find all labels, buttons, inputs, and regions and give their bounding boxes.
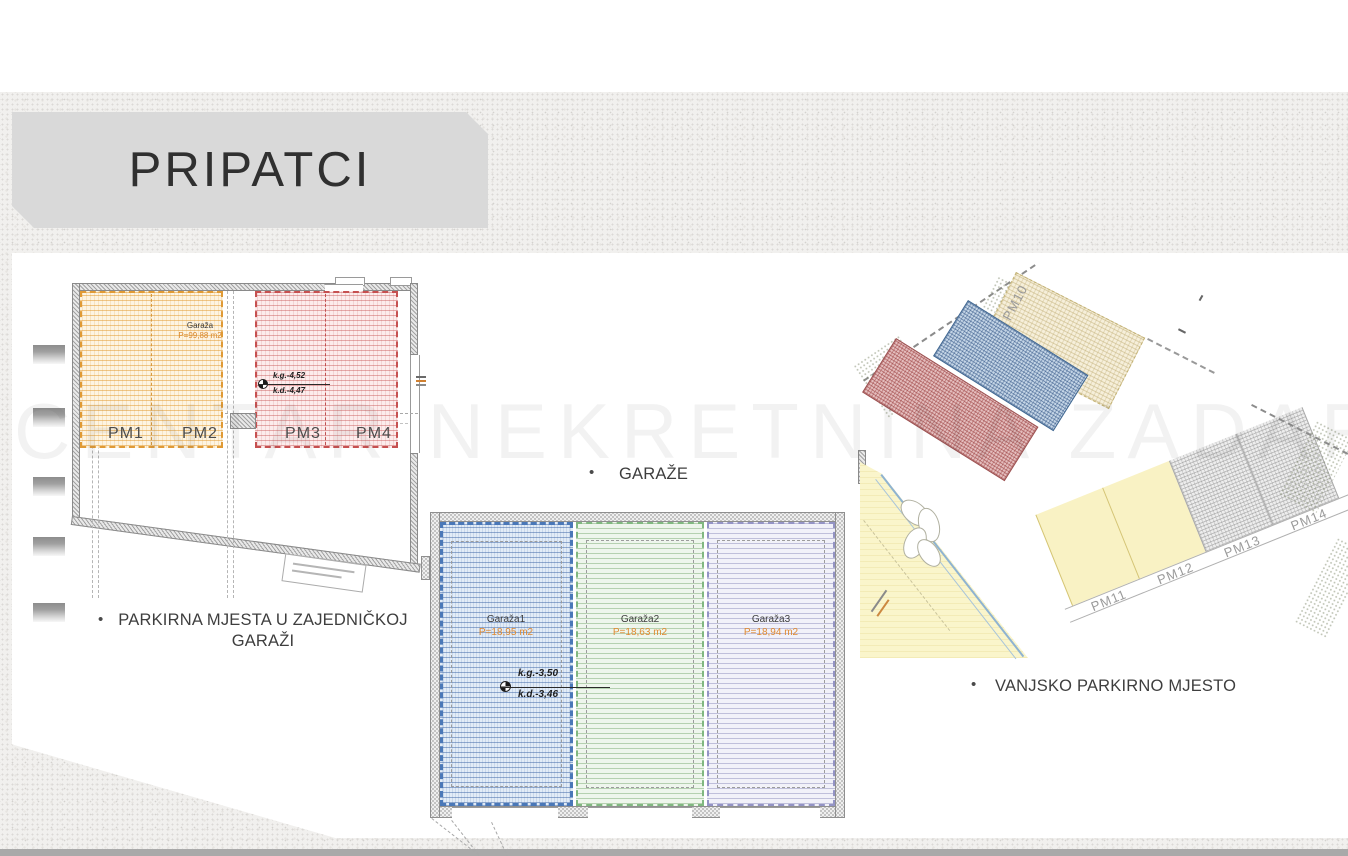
garage3-area: P=18,94 m2 [721,627,821,638]
garage2-area: P=18,63 m2 [590,627,690,638]
list-marker-block [33,477,65,496]
list-marker-block [33,537,65,556]
garage-zone-blue [440,522,573,806]
list-marker-block [33,345,65,364]
inner-outline [451,541,562,787]
presentation-slide: PRIPATCI Gara [0,0,1348,856]
garage2-name: Garaža2 [590,614,690,625]
inner-outline [586,540,694,788]
garage1-area: P=18,95 m2 [456,627,556,638]
list-marker-block [33,408,65,427]
garage-name-label: Garaža [160,321,240,330]
garage-zone-lavender [707,522,835,806]
wall [72,283,80,523]
level-top-label: k.g.-3,50 [518,668,558,679]
leader-line [500,687,610,688]
inner-outline [717,540,825,788]
tree-symbol [895,495,949,567]
stall-label-pm4: PM4 [344,425,404,443]
window-sill [390,277,412,286]
level-bottom-label: k.d.-4,47 [273,386,305,395]
caption-outdoor-parking: VANJSKO PARKIRNO MJESTO [995,676,1236,697]
wall [430,512,845,522]
stall-divider [325,294,326,445]
page-title: PRIPATCI [129,142,372,198]
wall [421,556,430,580]
illegible-text-line [416,384,426,386]
bottom-bar [0,849,1348,856]
illegible-text-line [416,376,426,378]
garage-door [588,807,692,818]
stall-divider [151,294,152,445]
bullet-icon: • [98,611,103,628]
level-bottom-label: k.d.-3,46 [518,689,558,700]
illegible-text-line [292,570,342,579]
column [230,413,256,429]
garage3-name: Garaža3 [721,614,821,625]
leader-line [258,384,330,385]
wall [72,283,418,291]
illegible-text-line [416,380,426,382]
garage-zone-green [576,522,704,806]
bullet-icon: • [589,464,594,481]
wall [410,283,418,355]
list-marker-block [33,603,65,622]
wall [410,453,418,571]
garage-door [720,807,820,818]
caption-shared-garage: PARKIRNA MJESTA U ZAJEDNIČKOJ GARAŽI [118,610,408,652]
garage1-name: Garaža1 [456,614,556,625]
caption-garages: GARAŽE [619,464,688,485]
window [410,355,420,453]
wall [430,512,440,818]
stall-label-pm3: PM3 [273,425,333,443]
level-top-label: k.g.-4,52 [273,371,305,380]
wall [835,512,845,818]
title-box: PRIPATCI [12,112,488,228]
garage-door [452,807,558,818]
bullet-icon: • [971,676,976,693]
garage-area-label: P=99,88 m2 [160,331,240,340]
stall-label-pm2: PM2 [170,425,230,443]
stall-label-pm1: PM1 [96,425,156,443]
